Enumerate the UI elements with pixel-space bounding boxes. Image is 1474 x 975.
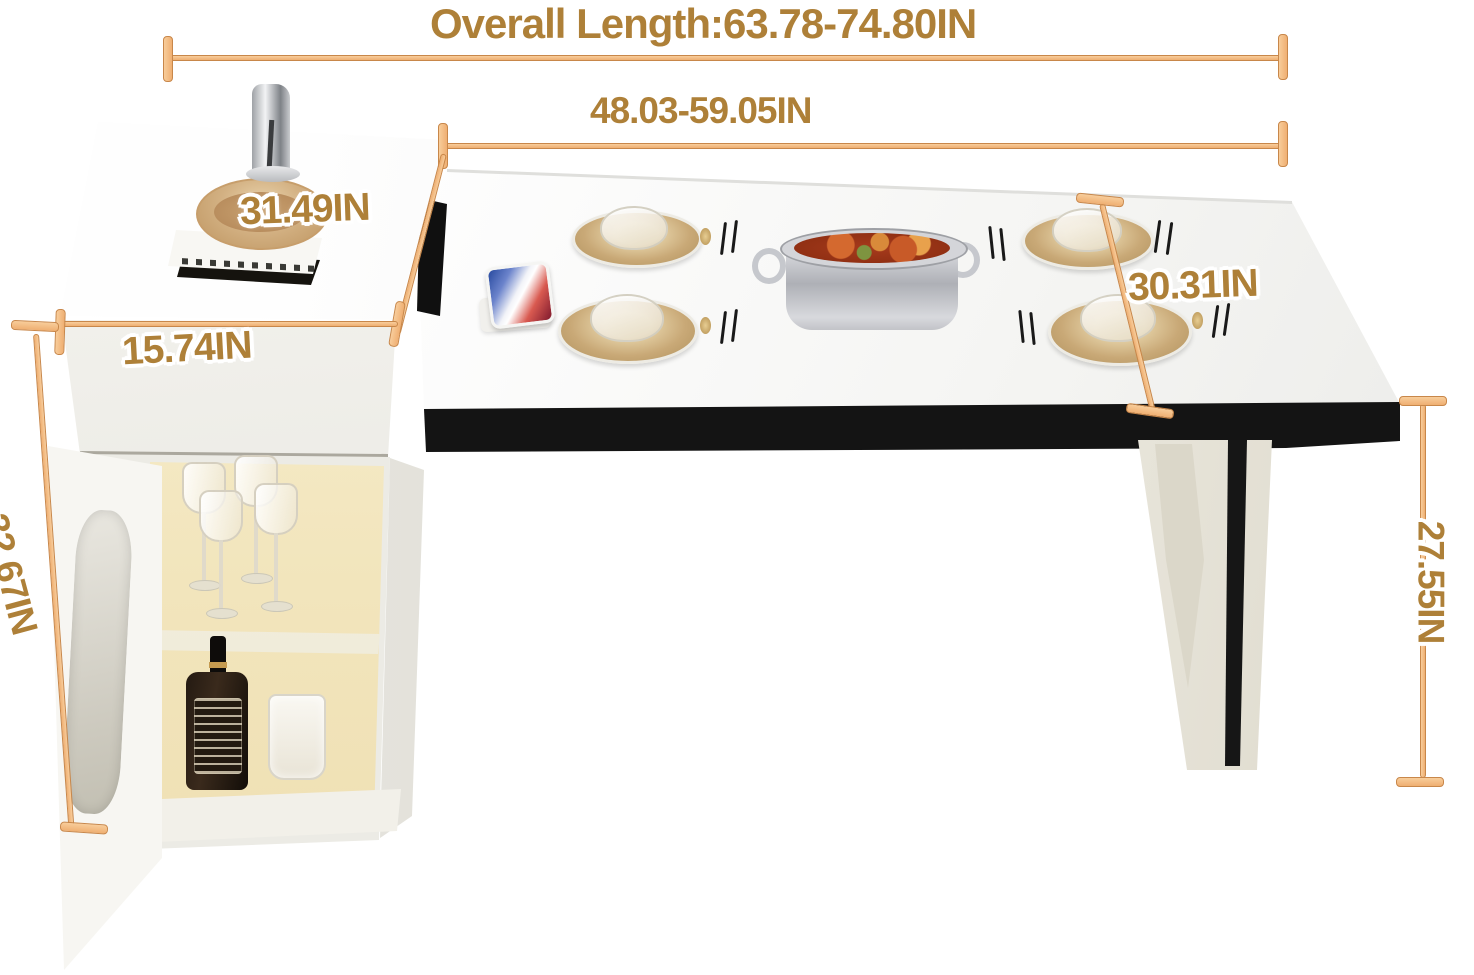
- dimension-line-extended-length: [443, 143, 1283, 149]
- knife-icon: [1154, 220, 1162, 253]
- dimension-cap: [54, 309, 66, 355]
- label-tabletop-depth: 31.49IN: [239, 186, 370, 234]
- spoon-icon: [700, 317, 711, 334]
- cutlery-set: [700, 220, 746, 266]
- label-tabletop-width: 30.31IN: [1127, 262, 1258, 310]
- dimension-cap: [1399, 396, 1447, 406]
- glass-bowl: [590, 294, 664, 342]
- knife-icon: [731, 220, 738, 253]
- dimension-cap: [1278, 121, 1288, 167]
- cutlery-set: [1014, 310, 1060, 356]
- dimension-cap: [1278, 34, 1288, 80]
- wine-glass-stem: [219, 540, 223, 610]
- wine-glass-foot: [206, 608, 238, 619]
- wine-glass-foot: [261, 601, 293, 612]
- pot-handle: [752, 248, 786, 284]
- product-dimension-diagram: Overall Length:63.78-74.80IN 48.03-59.05…: [0, 0, 1474, 975]
- knife-icon: [731, 309, 738, 342]
- chopstick-icon: [720, 311, 727, 344]
- dimension-cap: [11, 320, 59, 332]
- dimension-line-overall-length: [168, 55, 1283, 61]
- fork-icon: [1029, 312, 1035, 345]
- wine-glass-stem: [274, 533, 278, 603]
- wine-glass: [254, 483, 298, 628]
- dimension-cap: [1396, 777, 1444, 787]
- fork-icon: [988, 226, 994, 259]
- smartphone: [484, 260, 555, 329]
- knife-icon: [1166, 222, 1174, 255]
- cutlery-set: [984, 226, 1030, 272]
- knife-icon: [1212, 305, 1220, 338]
- label-overall-length: Overall Length:63.78-74.80IN: [430, 0, 976, 48]
- glass-bowl: [600, 206, 668, 250]
- liquor-bottle: [186, 636, 248, 790]
- spoon-icon: [1192, 312, 1203, 329]
- hot-pot-food: [794, 233, 950, 263]
- dimension-cap: [163, 36, 173, 82]
- label-table-height: 27.55IN: [1409, 521, 1451, 644]
- label-cabinet-depth: 15.74IN: [121, 324, 253, 375]
- fork-icon: [1018, 310, 1024, 343]
- chopstick-icon: [720, 222, 727, 255]
- cutlery-set: [1150, 220, 1196, 266]
- fork-icon: [999, 228, 1005, 261]
- bottle-label: [194, 698, 242, 774]
- wine-glass: [199, 490, 243, 635]
- spoon-icon: [700, 228, 711, 245]
- bottle-collar: [209, 662, 227, 668]
- label-cabinet-height: 32.67IN: [0, 509, 45, 638]
- knife-icon: [1223, 303, 1231, 336]
- wine-glass-bowl: [254, 483, 298, 535]
- cutlery-set: [1192, 303, 1238, 349]
- wine-glass-bowl: [199, 490, 243, 542]
- label-extended-length: 48.03-59.05IN: [590, 90, 812, 132]
- cutlery-set: [700, 308, 746, 354]
- frosted-cup: [268, 694, 326, 780]
- faucet-base: [246, 166, 300, 182]
